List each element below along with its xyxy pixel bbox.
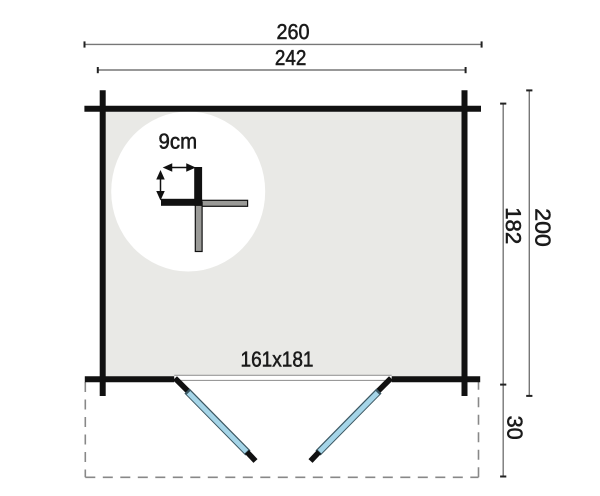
svg-text:200: 200 xyxy=(531,208,555,247)
svg-text:9cm: 9cm xyxy=(159,129,198,153)
svg-text:161x181: 161x181 xyxy=(241,348,314,372)
svg-text:182: 182 xyxy=(501,207,525,244)
svg-text:260: 260 xyxy=(277,20,310,44)
svg-text:242: 242 xyxy=(275,46,307,70)
svg-text:30: 30 xyxy=(503,416,527,440)
